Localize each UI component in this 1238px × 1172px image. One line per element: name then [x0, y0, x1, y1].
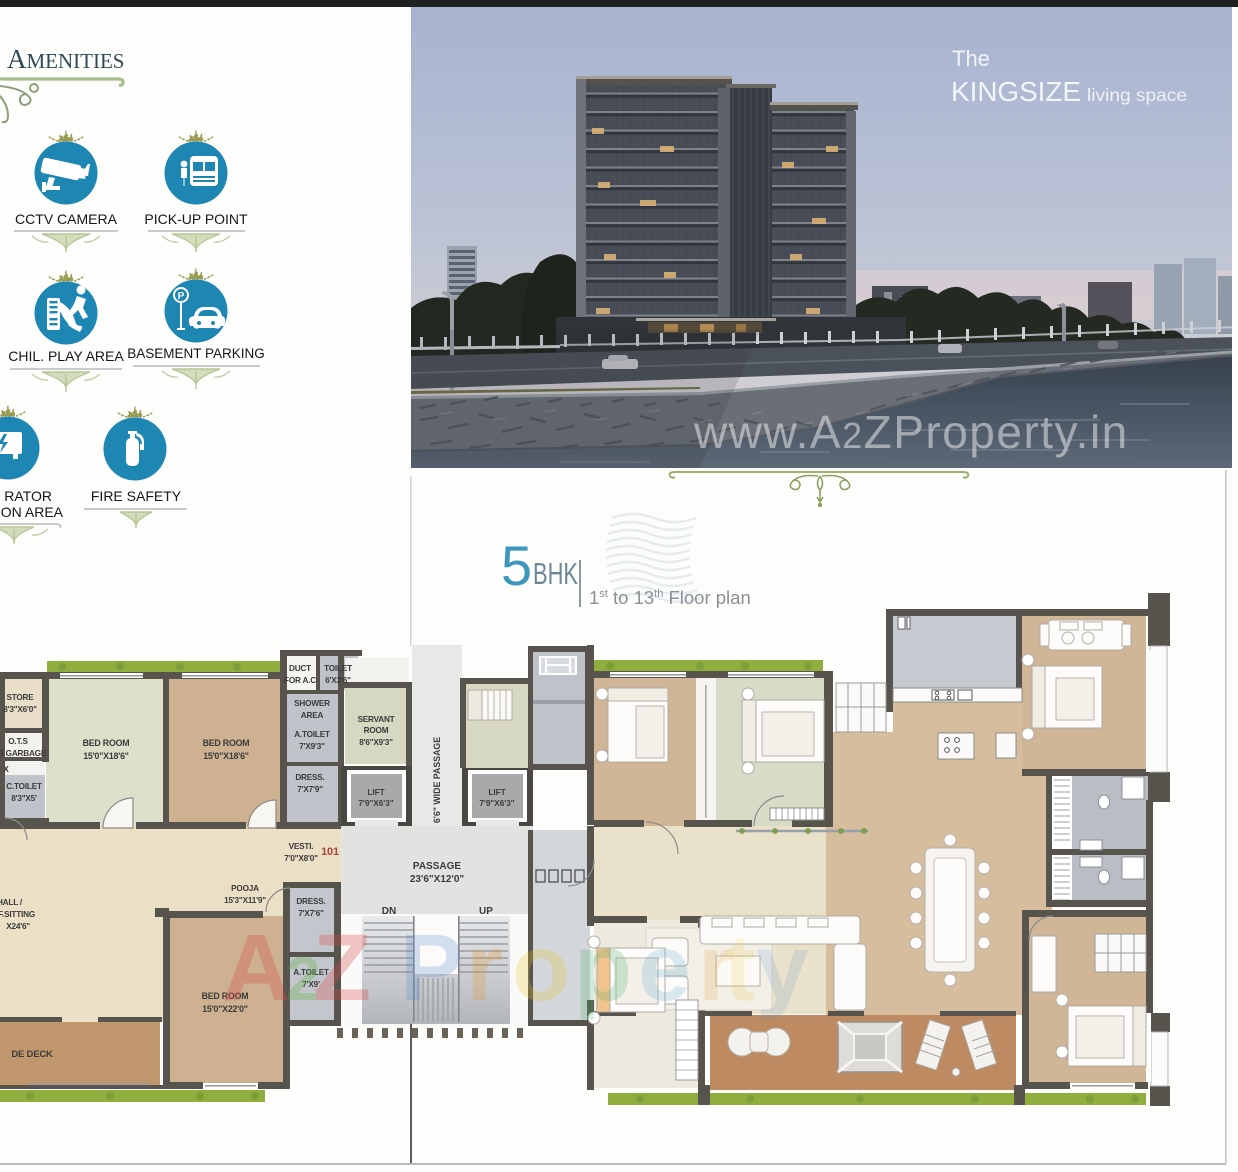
svg-text:BASEMENT PARKING: BASEMENT PARKING — [127, 346, 265, 361]
svg-text:15'0"X18'6": 15'0"X18'6" — [203, 751, 249, 761]
svg-text:ON AREA: ON AREA — [1, 504, 64, 520]
svg-text:www.A2ZProperty.in: www.A2ZProperty.in — [693, 406, 1129, 458]
svg-text:POOJA: POOJA — [231, 884, 259, 893]
svg-text:A.TOILET: A.TOILET — [294, 730, 330, 739]
svg-text:AREA: AREA — [301, 711, 324, 720]
svg-text:KINGSIZE: KINGSIZE — [951, 76, 1081, 107]
svg-text:8'3"X5': 8'3"X5' — [11, 794, 37, 803]
svg-text:CCTV CAMERA: CCTV CAMERA — [15, 211, 118, 227]
svg-text:F.SITTING: F.SITTING — [0, 910, 35, 919]
svg-text:15'0"X18'6": 15'0"X18'6" — [83, 751, 129, 761]
svg-text:7'9"X6'3": 7'9"X6'3" — [358, 799, 393, 808]
svg-text:FOR A.C: FOR A.C — [284, 676, 316, 685]
svg-text:BED ROOM: BED ROOM — [83, 738, 130, 748]
svg-text:o: o — [512, 915, 570, 1021]
svg-text:101: 101 — [321, 846, 339, 858]
svg-text:SHOWER: SHOWER — [294, 699, 330, 708]
svg-text:6'6" WIDE PASSAGE: 6'6" WIDE PASSAGE — [432, 737, 442, 823]
svg-text:STORE: STORE — [6, 693, 34, 702]
svg-text:5: 5 — [501, 534, 532, 597]
svg-text:15'3"X11'9": 15'3"X11'9" — [224, 896, 266, 905]
svg-text:LIFT: LIFT — [488, 788, 505, 797]
svg-text:BED ROOM: BED ROOM — [203, 738, 250, 748]
svg-text:P: P — [178, 291, 185, 302]
svg-text:R GARBAGE: R GARBAGE — [0, 749, 47, 758]
svg-text:r: r — [466, 915, 503, 1021]
svg-text:DE DECK: DE DECK — [11, 1049, 53, 1060]
svg-text:TOILET: TOILET — [324, 664, 352, 673]
svg-text:RATOR: RATOR — [4, 488, 52, 504]
svg-text:PICK-UP POINT: PICK-UP POINT — [144, 211, 248, 227]
svg-text:t: t — [724, 915, 756, 1021]
svg-text:VESTI.: VESTI. — [289, 842, 314, 851]
svg-text:O.T.S: O.T.S — [8, 737, 28, 746]
svg-text:DRESS.: DRESS. — [295, 773, 324, 782]
svg-text:living space: living space — [1087, 85, 1187, 105]
svg-text:p: p — [574, 915, 632, 1021]
svg-text:AMENITIES: AMENITIES — [7, 44, 125, 74]
svg-text:CHIL. PLAY AREA: CHIL. PLAY AREA — [8, 348, 124, 364]
svg-text:PASSAGE: PASSAGE — [413, 861, 461, 872]
svg-text:y: y — [756, 915, 809, 1021]
svg-text:23'6"X12'0": 23'6"X12'0" — [410, 874, 465, 885]
svg-text:DN: DN — [382, 906, 396, 917]
svg-text:e: e — [638, 915, 691, 1021]
svg-text:DRESS.: DRESS. — [296, 897, 325, 906]
svg-text:C.TOILET: C.TOILET — [6, 782, 42, 791]
svg-text:6'X3'6": 6'X3'6" — [325, 676, 351, 685]
svg-text:7'X7'9": 7'X7'9" — [297, 785, 323, 794]
svg-text:A: A — [222, 915, 291, 1021]
svg-text:P: P — [400, 915, 463, 1021]
svg-text:7'9"X6'3": 7'9"X6'3" — [479, 799, 514, 808]
svg-text:7'X9'3": 7'X9'3" — [299, 742, 325, 751]
svg-text:8'3"X6'0": 8'3"X6'0" — [3, 705, 37, 714]
svg-text:The: The — [952, 46, 990, 71]
svg-text:7'0"X8'0": 7'0"X8'0" — [284, 854, 318, 863]
svg-text:LIFT: LIFT — [367, 788, 384, 797]
svg-text:1st to 13th Floor plan: 1st to 13th Floor plan — [589, 587, 751, 608]
svg-text:X: X — [3, 765, 9, 774]
svg-text:FIRE SAFETY: FIRE SAFETY — [91, 488, 182, 504]
svg-text:8'6"X9'3": 8'6"X9'3" — [359, 738, 393, 747]
svg-text:BHK: BHK — [533, 556, 578, 591]
svg-text:DUCT: DUCT — [289, 664, 311, 673]
svg-text:X24'6": X24'6" — [6, 922, 30, 931]
svg-text:G HALL /: G HALL / — [0, 898, 23, 907]
svg-text:SERVANT: SERVANT — [358, 715, 395, 724]
svg-text:ROOM: ROOM — [364, 726, 389, 735]
svg-text:Z: Z — [313, 915, 371, 1021]
